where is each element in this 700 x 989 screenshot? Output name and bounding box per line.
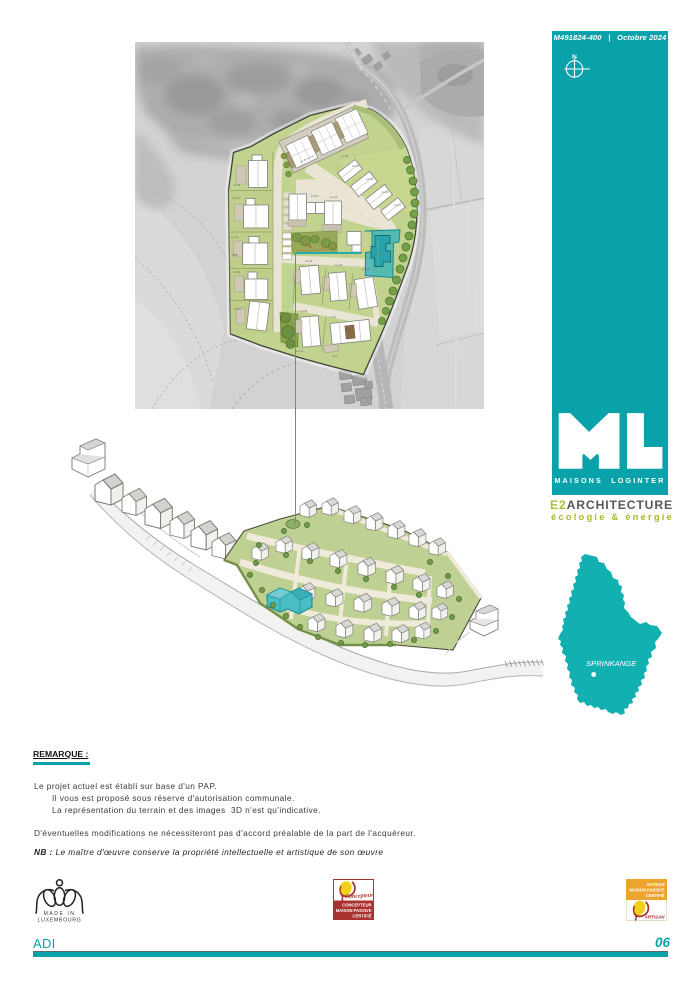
svg-text:Lot 9b: Lot 9b	[300, 309, 308, 313]
svg-text:CERTIFIÉ: CERTIFIÉ	[352, 914, 371, 919]
svg-text:Lot 1b: Lot 1b	[231, 235, 239, 239]
svg-text:LUXEMBOURG: LUXEMBOURG	[38, 918, 82, 924]
svg-text:Lot 8: Lot 8	[330, 315, 336, 319]
svg-text:Lot 15: Lot 15	[335, 263, 343, 267]
svg-text:MAISON PASSIVE: MAISON PASSIVE	[336, 908, 372, 913]
svg-text:Lot 22: Lot 22	[366, 177, 374, 181]
svg-text:Lot 12: Lot 12	[311, 194, 319, 198]
svg-text:Lot 16: Lot 16	[305, 259, 313, 263]
svg-text:Lot 5a: Lot 5a	[233, 270, 241, 274]
svg-text:ARTISAN: ARTISAN	[646, 882, 664, 887]
svg-text:Lot 32: Lot 32	[232, 196, 240, 200]
svg-text:Lot 6b: Lot 6b	[234, 307, 242, 311]
svg-text:Lot 27: Lot 27	[394, 203, 402, 207]
svg-text:Lot 4: Lot 4	[332, 354, 338, 358]
svg-text:4858: 4858	[232, 253, 238, 257]
svg-text:Lot 5b: Lot 5b	[296, 349, 304, 353]
svg-text:ARTISAN: ARTISAN	[644, 915, 666, 920]
svg-text:MAISON PASSIVE: MAISON PASSIVE	[630, 888, 665, 893]
svg-text:Lot 33: Lot 33	[233, 183, 241, 187]
svg-text:Lot 23: Lot 23	[381, 190, 389, 194]
svg-text:CERTIFIÉ: CERTIFIÉ	[646, 893, 665, 898]
svg-text:CONCEPTEUR: CONCEPTEUR	[342, 903, 371, 908]
svg-text:Lot 21: Lot 21	[352, 164, 360, 168]
svg-text:MADE IN: MADE IN	[43, 911, 75, 917]
svg-text:Lot 18: Lot 18	[374, 252, 382, 256]
svg-text:Lot 14: Lot 14	[362, 267, 370, 271]
svg-text:Lot 13: Lot 13	[330, 195, 338, 199]
svg-text:Lot 26: Lot 26	[341, 154, 349, 158]
svg-text:SPRINKANGE: SPRINKANGE	[586, 659, 637, 668]
